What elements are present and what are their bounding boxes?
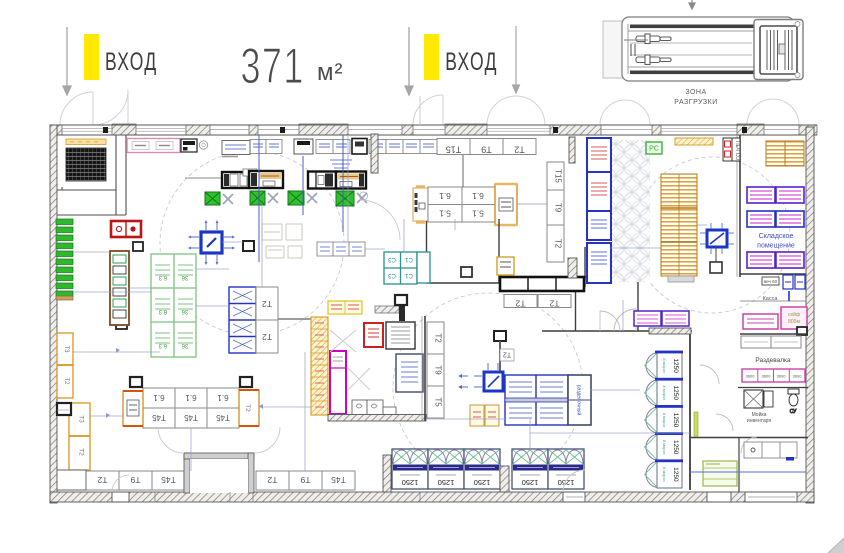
svg-text:Т9: Т9 xyxy=(434,365,443,375)
svg-text:8 мороз: 8 мороз xyxy=(662,358,667,373)
svg-text:Т2: Т2 xyxy=(267,475,277,485)
svg-text:Т2: Т2 xyxy=(244,404,251,412)
svg-text:м²: м² xyxy=(317,59,344,86)
svg-text:Т9: Т9 xyxy=(130,475,140,485)
svg-text:1250: 1250 xyxy=(402,478,419,487)
svg-text:С3: С3 xyxy=(388,256,396,262)
svg-text:Т2: Т2 xyxy=(549,299,559,309)
svg-text:1250: 1250 xyxy=(672,440,679,455)
svg-text:6.3: 6.3 xyxy=(158,274,167,280)
svg-text:36: 36 xyxy=(181,274,188,280)
svg-text:Т45: Т45 xyxy=(331,475,346,485)
svg-text:1250: 1250 xyxy=(672,467,679,482)
svg-text:1250: 1250 xyxy=(558,478,575,487)
svg-text:5.1: 5.1 xyxy=(439,209,451,219)
svg-text:разделочный: разделочный xyxy=(576,385,583,416)
svg-text:Т2: Т2 xyxy=(262,332,272,342)
svg-text:СУ: СУ xyxy=(790,409,797,415)
svg-text:Раздевалка: Раздевалка xyxy=(755,357,791,364)
svg-text:8 мороз: 8 мороз xyxy=(662,386,667,401)
svg-text:веч 60: веч 60 xyxy=(764,279,778,284)
svg-text:3600: 3600 xyxy=(793,374,803,379)
svg-text:3600: 3600 xyxy=(746,374,756,379)
svg-text:3600: 3600 xyxy=(762,374,772,379)
svg-text:36: 36 xyxy=(181,308,188,314)
svg-text:Т2: Т2 xyxy=(63,377,69,385)
svg-text:Т9: Т9 xyxy=(481,145,492,155)
svg-text:371: 371 xyxy=(240,39,304,94)
svg-text:РАЗГРУЗКИ: РАЗГРУЗКИ xyxy=(674,99,717,106)
svg-text:Т15: Т15 xyxy=(554,169,563,183)
svg-text:Т2: Т2 xyxy=(554,239,563,249)
svg-text:1250: 1250 xyxy=(474,478,491,487)
svg-text:Т45: Т45 xyxy=(184,413,198,422)
svg-text:С3: С3 xyxy=(388,272,396,278)
svg-text:6.1: 6.1 xyxy=(439,191,451,201)
svg-text:6.1: 6.1 xyxy=(153,393,165,402)
svg-text:3600: 3600 xyxy=(777,374,787,379)
svg-text:Т2: Т2 xyxy=(78,448,85,456)
svg-text:Т9: Т9 xyxy=(554,203,563,213)
svg-text:6.3: 6.3 xyxy=(158,342,167,348)
svg-text:36: 36 xyxy=(181,342,188,348)
svg-text:6.1: 6.1 xyxy=(472,191,484,201)
svg-text:1250: 1250 xyxy=(522,478,539,487)
svg-text:Т45: Т45 xyxy=(161,475,176,485)
svg-text:Т2: Т2 xyxy=(97,475,107,485)
svg-text:С1: С1 xyxy=(405,256,413,262)
svg-text:Т3: Т3 xyxy=(63,345,69,353)
svg-text:сейф: сейф xyxy=(788,311,800,318)
svg-text:Т5: Т5 xyxy=(434,397,443,407)
svg-text:1250: 1250 xyxy=(438,478,455,487)
svg-text:помещение: помещение xyxy=(757,243,795,250)
svg-text:8 мороз: 8 мороз xyxy=(662,413,667,428)
svg-text:ПЕЧ СО: ПЕЧ СО xyxy=(734,141,740,160)
svg-text:1250: 1250 xyxy=(672,413,679,428)
svg-text:Т15: Т15 xyxy=(446,145,462,155)
svg-text:6.1: 6.1 xyxy=(217,393,229,402)
svg-text:ВХОД: ВХОД xyxy=(445,47,498,76)
svg-text:Т2: Т2 xyxy=(515,299,525,309)
svg-text:инвентаря: инвентаря xyxy=(747,418,771,424)
svg-text:8 мороз: 8 мороз xyxy=(662,440,667,455)
svg-text:6.3: 6.3 xyxy=(158,308,167,314)
svg-text:Т45: Т45 xyxy=(152,413,166,422)
svg-text:Т2: Т2 xyxy=(434,333,443,343)
svg-text:Т2: Т2 xyxy=(503,351,511,358)
svg-text:Мойка: Мойка xyxy=(752,411,767,418)
svg-text:1250: 1250 xyxy=(672,386,679,401)
svg-text:1250: 1250 xyxy=(672,358,679,373)
svg-text:Т2: Т2 xyxy=(262,299,272,309)
svg-text:Т45: Т45 xyxy=(216,413,230,422)
svg-text:С1: С1 xyxy=(405,272,413,278)
svg-text:800м: 800м xyxy=(788,319,800,325)
svg-text:Т3: Т3 xyxy=(78,415,85,423)
svg-text:5.1: 5.1 xyxy=(472,209,484,219)
svg-text:Складское: Складское xyxy=(759,233,794,240)
svg-text:8 мороз: 8 мороз xyxy=(662,467,667,482)
svg-text:PC: PC xyxy=(649,146,659,153)
svg-text:6.1: 6.1 xyxy=(185,393,197,402)
svg-text:ВХОД: ВХОД xyxy=(105,47,158,76)
svg-text:ЗОНА: ЗОНА xyxy=(685,89,706,96)
svg-text:Т9: Т9 xyxy=(300,475,310,485)
svg-text:Т2: Т2 xyxy=(514,145,525,155)
